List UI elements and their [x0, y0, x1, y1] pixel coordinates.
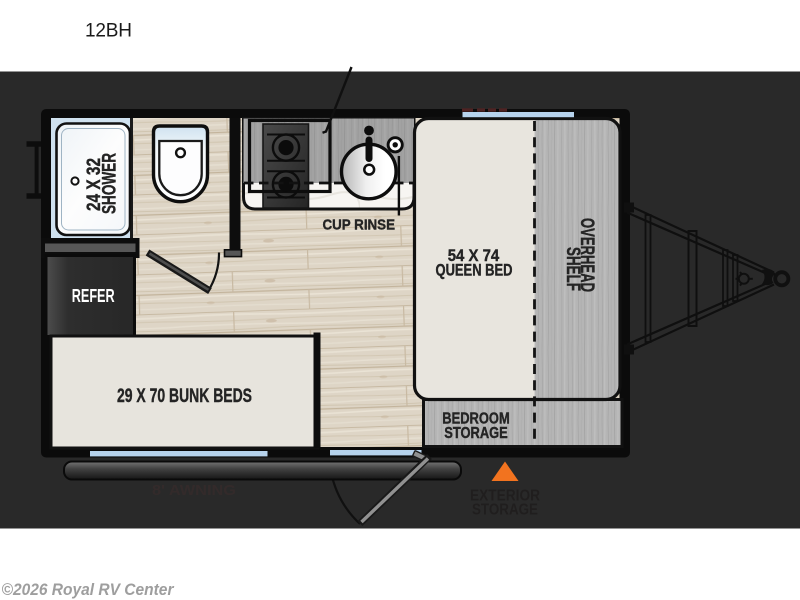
svg-text:©2026 Royal RV Center: ©2026 Royal RV Center — [2, 580, 175, 599]
svg-text:QUEEN BED: QUEEN BED — [436, 261, 513, 280]
svg-text:REFER: REFER — [72, 286, 115, 306]
svg-text:SHOWER: SHOWER — [99, 153, 121, 214]
svg-text:SHELF: SHELF — [562, 247, 583, 291]
svg-text:12BH: 12BH — [85, 21, 132, 42]
svg-text:29 X 70 BUNK BEDS: 29 X 70 BUNK BEDS — [117, 386, 252, 407]
svg-text:STORAGE: STORAGE — [444, 425, 508, 442]
svg-text:CUP RINSE: CUP RINSE — [323, 216, 396, 233]
svg-text:STORAGE: STORAGE — [472, 502, 538, 519]
svg-text:8' AWNING: 8' AWNING — [152, 482, 236, 499]
